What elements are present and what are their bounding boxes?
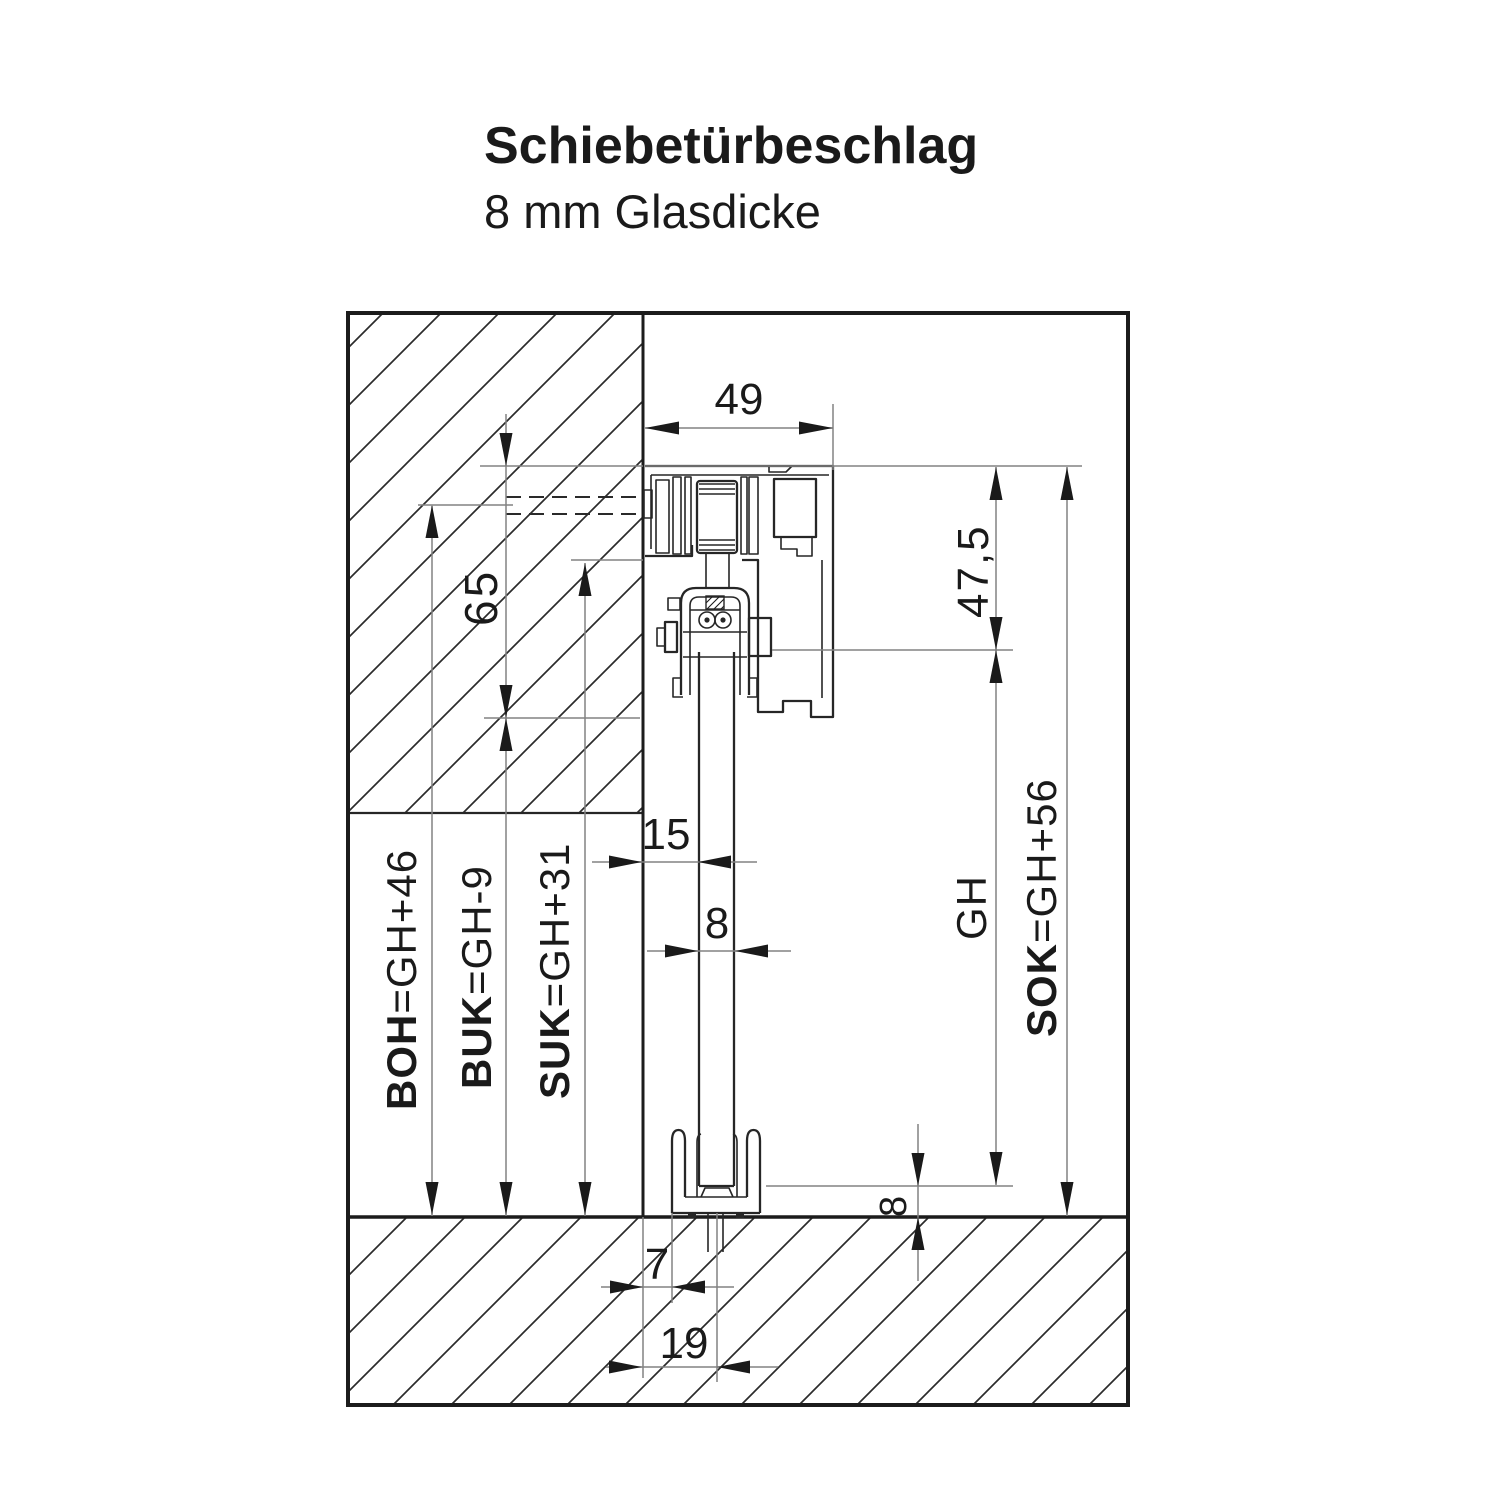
roller-plate — [749, 477, 758, 554]
dim-text-47-5: 47,5 — [949, 524, 998, 618]
dim-text-15: 15 — [642, 810, 691, 859]
roller-tread — [699, 484, 735, 550]
guide-foot — [688, 1213, 696, 1218]
dim-text-suk: SUK=GH+31 — [531, 843, 578, 1099]
roller-stem — [706, 553, 729, 588]
page-subtitle: 8 mm Glasdicke — [484, 185, 821, 238]
glass-clamp — [657, 588, 771, 697]
guide-right-arm — [747, 1130, 760, 1213]
guide-setting-pad — [701, 1188, 733, 1197]
dim-text-8-glass: 8 — [705, 899, 729, 948]
guide-foot — [736, 1213, 744, 1218]
technical-drawing: Schiebetürbeschlag 8 mm Glasdicke — [0, 0, 1500, 1500]
dim-text-65: 65 — [455, 569, 507, 626]
dim-text-8-gap: 8 — [873, 1196, 915, 1217]
dim-text-49: 49 — [715, 375, 764, 424]
wall-section — [348, 315, 643, 813]
dim-text-buk: BUK=GH-9 — [453, 865, 500, 1089]
dim-text-19: 19 — [660, 1319, 709, 1368]
page: Schiebetürbeschlag 8 mm Glasdicke — [0, 0, 1500, 1500]
dim-text-boh: BOH=GH+46 — [378, 849, 425, 1110]
roller-wheel — [697, 481, 737, 553]
roller-plate — [673, 477, 681, 554]
clamp-stirrup-inner — [690, 597, 740, 695]
dim-text-7: 7 — [645, 1240, 669, 1289]
clamp-screw-dot — [704, 617, 709, 622]
floor-section — [348, 1217, 1128, 1403]
clamp-screw-dot — [720, 617, 725, 622]
guide-left-arm — [672, 1130, 685, 1213]
clamp-left-tab — [668, 598, 680, 610]
clamp-adjust-screw — [706, 596, 724, 609]
roller-plate — [741, 477, 747, 554]
dim-text-gh: GH — [948, 875, 995, 940]
clamp-left-bolt — [665, 622, 677, 652]
roller-assembly — [656, 477, 758, 588]
clamp-right-wing — [749, 618, 771, 656]
roller-left-block — [656, 480, 669, 553]
track-t-slot — [781, 537, 812, 556]
track-chamber — [774, 479, 816, 537]
dim-text-sok: SOK=GH+56 — [1018, 778, 1065, 1037]
clamp-left-bolt-head — [657, 628, 665, 646]
clamp-feet — [673, 678, 757, 697]
roller-plate — [685, 477, 691, 554]
page-title: Schiebetürbeschlag — [484, 117, 978, 175]
